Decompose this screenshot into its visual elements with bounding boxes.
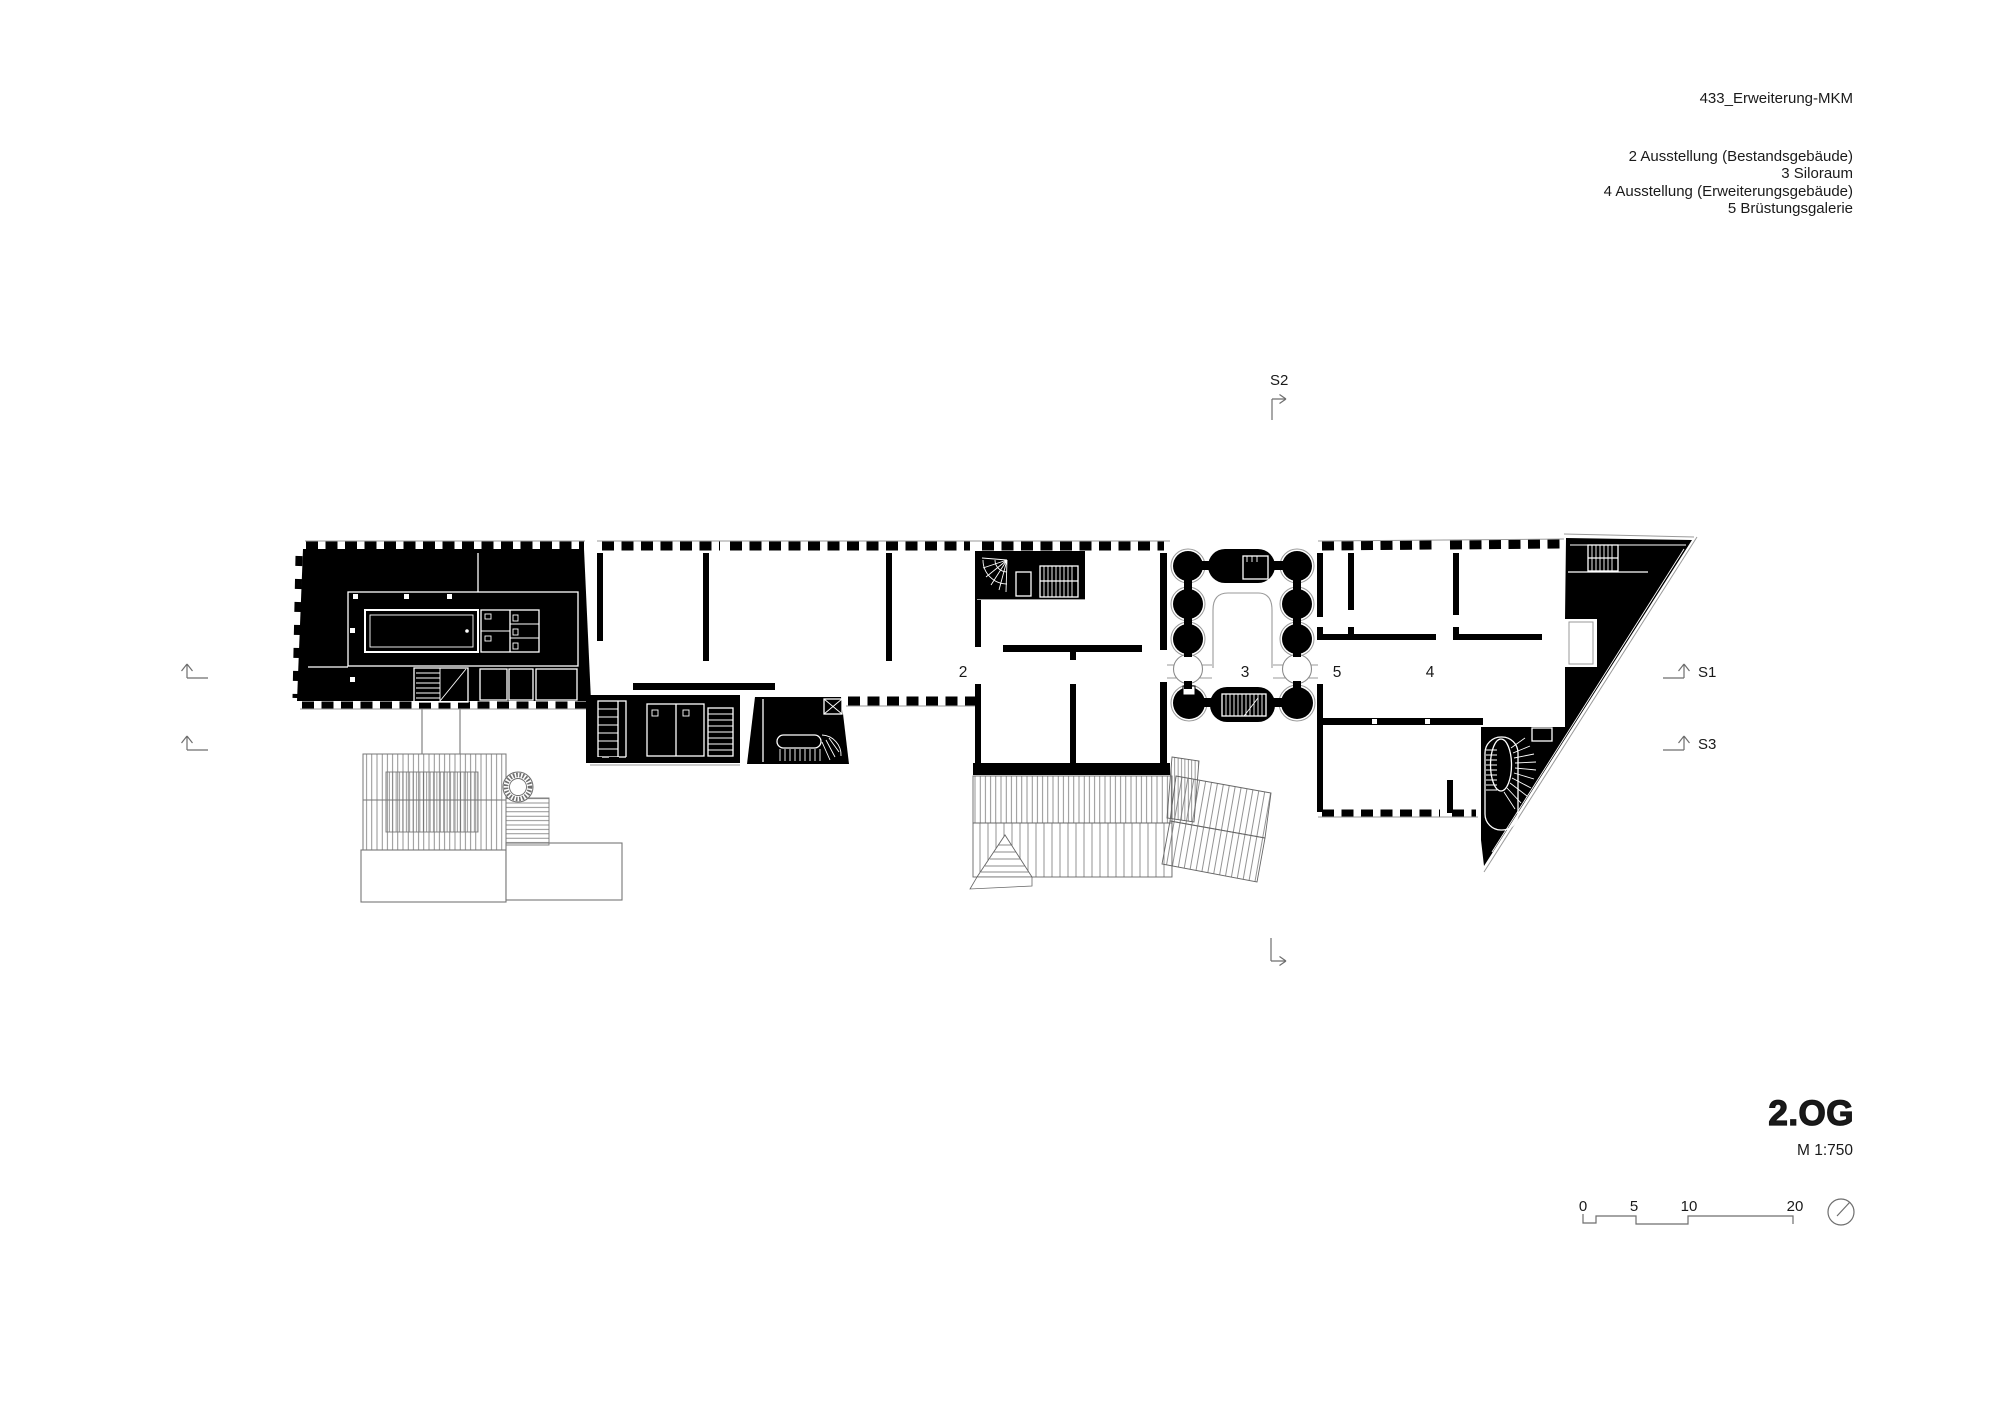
round-tower-roof [503,772,533,802]
section-arrow-icon-s2-top [1272,395,1286,421]
building-d-erweiterung [1317,534,1697,872]
fan-stair-block [747,697,849,764]
scale-tick-20: 20 [1787,1198,1804,1215]
silo-column-right [1279,549,1315,721]
room-label-4: 4 [1426,664,1435,681]
hall-room [365,610,478,652]
section-arrow-icon-s3 [1663,736,1690,750]
silo-capsule-stair [1200,687,1284,722]
floor-plan-drawing: 2 3 5 4 S2 S1 [0,0,2000,1414]
building-a-bestand-west [296,541,591,709]
drawing-sheet: 433_Erweiterung-MKM 2 Ausstellung (Besta… [0,0,2000,1414]
triangle-wedge [1481,534,1697,872]
service-annex [586,695,740,765]
silo-column-left [1171,549,1207,721]
siloraum-outline [1213,593,1272,668]
section-label-s1: S1 [1698,664,1716,681]
roof-plan-middle-neighbour [970,757,1271,889]
north-arrow-icon [1828,1199,1854,1225]
scale-tick-10: 10 [1681,1198,1698,1215]
scale-tick-0: 0 [1579,1198,1587,1215]
building-c-bestand-east [973,551,1170,775]
section-arrow-icon-s2-bottom [1271,938,1286,966]
room-label-2: 2 [959,664,968,681]
section-arrow-icon-s1 [1663,664,1690,678]
section-arrow-icon-left-lower [182,736,209,750]
section-arrow-icon-left-upper [182,664,209,678]
silo-capsule-top [1200,549,1283,583]
section-label-s2: S2 [1270,372,1288,389]
room-label-5: 5 [1333,664,1342,681]
section-label-s3: S3 [1698,736,1716,753]
scale-bar: 0 5 10 20 [1579,1198,1804,1224]
silo-court [1171,549,1315,722]
scale-tick-5: 5 [1630,1198,1638,1215]
room-label-3: 3 [1241,664,1250,681]
roof-plan-left-neighbour [361,706,622,902]
